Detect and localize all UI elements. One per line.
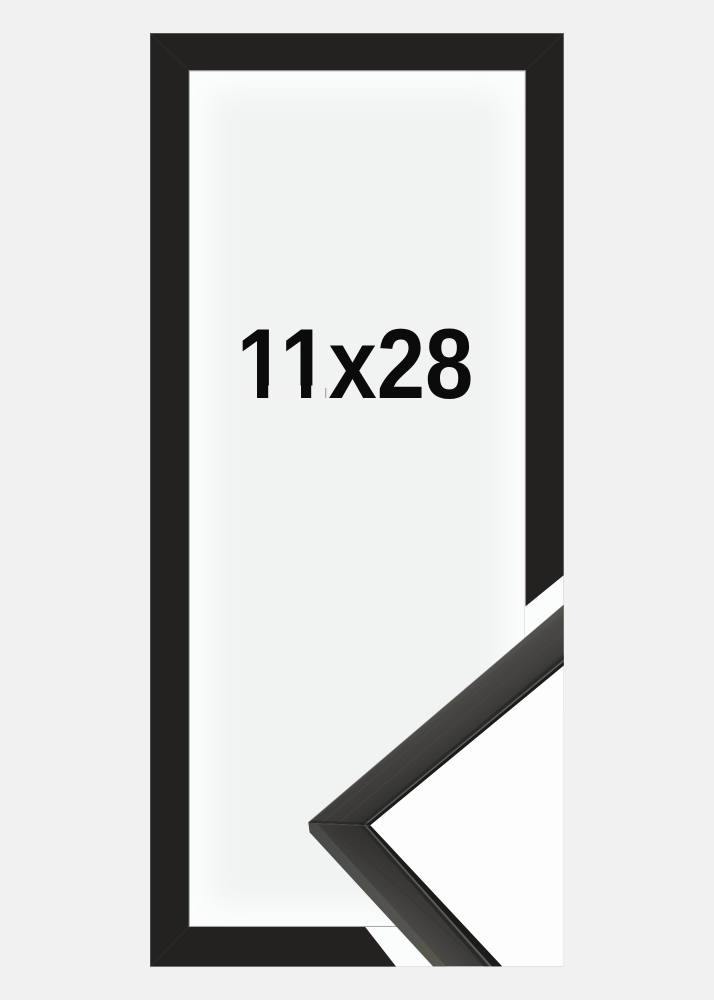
svg-text:11x28: 11x28 <box>237 308 474 419</box>
